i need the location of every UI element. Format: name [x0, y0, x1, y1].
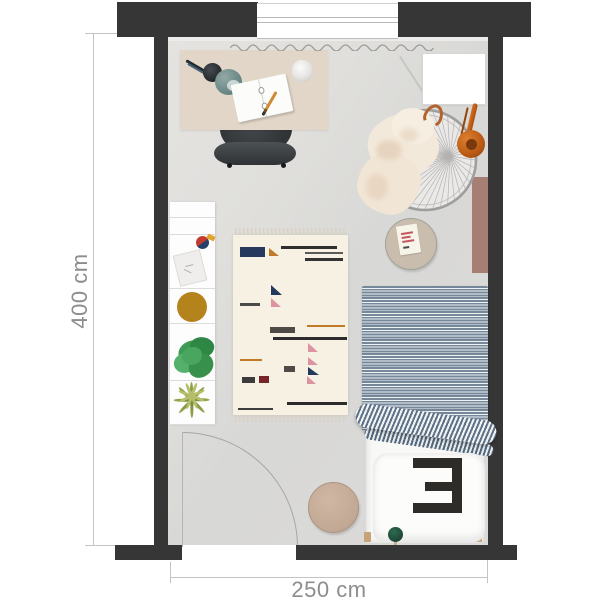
rug-pattern — [238, 408, 273, 410]
bushy-plant[interactable] — [172, 335, 216, 383]
pillow-numeral-bar — [425, 482, 462, 491]
wall-bottom-right — [296, 545, 517, 560]
rug-pattern — [281, 246, 337, 249]
rug-pattern — [269, 248, 279, 256]
headphones-earcup-center — [466, 139, 477, 150]
rug-pattern — [273, 337, 347, 340]
shelf-divider — [170, 323, 215, 324]
side-table[interactable] — [385, 218, 437, 270]
window-pane-line — [257, 17, 398, 18]
height-dimension-tick-top — [85, 33, 117, 34]
rug[interactable] — [233, 235, 348, 415]
wall-left — [154, 37, 168, 546]
wall-top-right — [398, 2, 531, 37]
wall-bottom-left — [115, 545, 182, 560]
width-dimension-tick-right — [487, 560, 488, 583]
wall-top-left — [117, 2, 258, 37]
rug-pattern — [259, 376, 269, 383]
pouf[interactable] — [308, 482, 359, 533]
notebook-ring — [258, 86, 265, 94]
desk-chair-foot — [227, 163, 232, 168]
rug-pattern — [271, 298, 281, 307]
bed[interactable]: 3 — [362, 286, 488, 545]
decor-circle — [177, 292, 207, 322]
shelf[interactable] — [170, 202, 215, 425]
rug-pattern — [271, 285, 282, 295]
table-card — [396, 224, 421, 256]
rug-pattern — [240, 303, 260, 306]
desk-chair-backrest — [214, 142, 296, 165]
rug-pattern — [305, 258, 343, 261]
height-dimension-tick-bottom — [85, 545, 115, 546]
pompom — [388, 527, 403, 542]
rug-pattern — [307, 376, 316, 384]
paper-card — [173, 249, 208, 287]
floor-plan-canvas: 3 400 cm 250 cm — [0, 0, 600, 600]
shelf-divider — [170, 217, 215, 218]
desk-chair-foot — [281, 163, 286, 168]
rug-pattern — [307, 325, 345, 327]
sheepskin-shading — [366, 174, 388, 200]
rug-pattern — [284, 366, 295, 372]
rug-pattern — [287, 402, 347, 405]
rug-pattern — [308, 357, 318, 365]
sheepskin-shading — [376, 140, 402, 160]
radiator-squiggle — [230, 41, 434, 51]
bed-foot — [364, 532, 371, 542]
rug-pattern — [242, 377, 255, 383]
rug-pattern — [240, 359, 262, 361]
pillow-numeral-bar — [413, 503, 462, 513]
rug-pattern — [305, 252, 343, 254]
wall-right — [488, 37, 503, 546]
rug-pattern — [240, 247, 265, 257]
shelf-divider — [170, 288, 215, 289]
height-dimension-label: 400 cm — [67, 253, 93, 328]
rug-pattern — [308, 367, 319, 375]
height-dimension-line — [93, 33, 94, 545]
window[interactable] — [257, 3, 398, 39]
rug-pattern — [270, 327, 295, 333]
crumpled-paper[interactable] — [292, 60, 313, 82]
spiky-plant[interactable] — [173, 382, 211, 418]
wall-board[interactable] — [422, 53, 486, 105]
rug-fringe — [235, 415, 346, 422]
window-pane-line — [257, 22, 398, 23]
width-dimension-label: 250 cm — [291, 577, 366, 600]
rug-pattern — [308, 343, 318, 352]
rug-fringe — [235, 228, 346, 235]
width-dimension-tick-left — [170, 562, 171, 583]
sheepskin-shading — [400, 128, 418, 142]
